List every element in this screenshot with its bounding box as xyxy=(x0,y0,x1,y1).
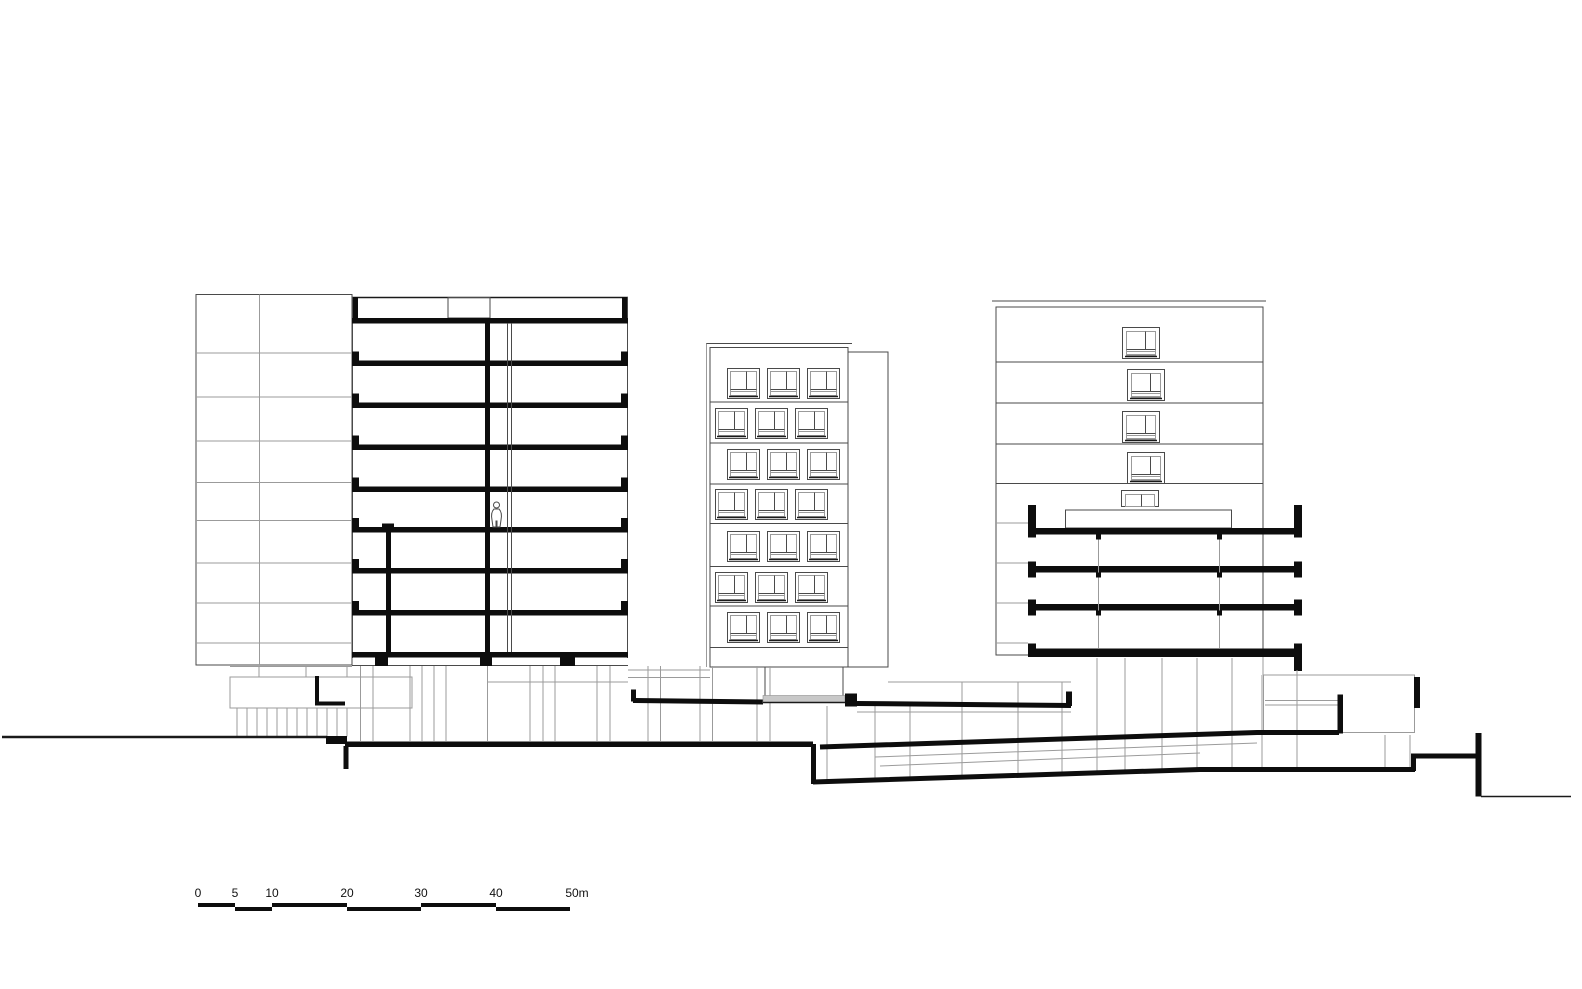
fence-lines xyxy=(237,708,347,737)
window xyxy=(808,532,840,562)
central-cut-wall xyxy=(485,318,490,658)
scale-label-0: 0 xyxy=(195,886,202,900)
window xyxy=(808,369,840,399)
right-building-section xyxy=(1028,505,1302,671)
scale-label-20: 20 xyxy=(340,886,354,900)
partial-window xyxy=(1122,491,1159,507)
roof-parapet xyxy=(1066,510,1232,528)
scale-label-40: 40 xyxy=(489,886,503,900)
window xyxy=(768,369,800,399)
floor-slabs xyxy=(1028,528,1302,657)
window xyxy=(728,450,760,480)
window xyxy=(716,490,748,520)
window xyxy=(808,613,840,643)
basement-grid-lines xyxy=(361,658,1411,780)
window xyxy=(808,450,840,480)
lower-basement-floor xyxy=(813,770,1415,783)
entrance-canopy xyxy=(763,696,845,703)
scale-label-5: 5 xyxy=(232,886,239,900)
window xyxy=(716,573,748,603)
window xyxy=(728,369,760,399)
window xyxy=(728,613,760,643)
human-scale-figure xyxy=(492,502,502,527)
far-right-step xyxy=(1414,756,1479,771)
entry-step-wall xyxy=(317,676,345,704)
window-stack xyxy=(1122,328,1165,507)
window xyxy=(768,613,800,643)
scale-label-30: 30 xyxy=(414,886,428,900)
side-face xyxy=(848,352,888,667)
roof-bulkhead xyxy=(448,298,490,319)
window xyxy=(768,532,800,562)
window xyxy=(756,409,788,439)
window xyxy=(728,532,760,562)
window xyxy=(756,490,788,520)
window xyxy=(716,409,748,439)
section-drawing-svg: 0 5 10 20 30 40 50m xyxy=(0,0,1582,989)
scale-bar: 0 5 10 20 30 40 50m xyxy=(195,886,589,909)
left-building-section xyxy=(352,297,628,666)
window xyxy=(1123,412,1160,443)
basement-slab xyxy=(345,742,813,748)
window xyxy=(1123,328,1160,359)
scale-label-50m: 50m xyxy=(565,886,588,900)
architectural-section-drawing: 0 5 10 20 30 40 50m xyxy=(0,0,1582,989)
window-grid xyxy=(716,369,840,643)
window xyxy=(796,573,828,603)
window xyxy=(1128,453,1165,484)
window xyxy=(768,450,800,480)
window xyxy=(796,409,828,439)
retaining-wall xyxy=(1476,733,1482,797)
window xyxy=(756,573,788,603)
lower-secondary-wall xyxy=(386,527,391,652)
window xyxy=(1128,370,1165,401)
window xyxy=(796,490,828,520)
plaza-deck xyxy=(631,690,1072,707)
middle-building-elevation xyxy=(706,344,888,698)
scale-label-10: 10 xyxy=(265,886,279,900)
